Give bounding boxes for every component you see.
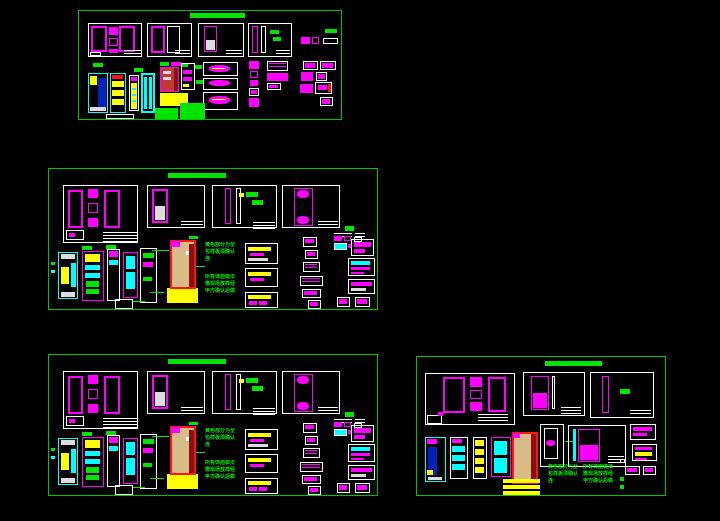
detail-part <box>51 456 55 459</box>
cabinet-part <box>85 265 100 270</box>
door-panel <box>580 445 598 460</box>
column-part <box>513 433 520 438</box>
detail-part <box>248 258 268 261</box>
detail-part <box>354 249 365 253</box>
detail-part <box>69 419 75 423</box>
detail-part <box>438 412 443 416</box>
detail-part <box>248 272 271 276</box>
green-label <box>246 192 258 197</box>
cabinet-part <box>143 277 152 281</box>
cabinet-part <box>143 262 153 267</box>
detail-part <box>304 291 317 295</box>
door-hardware <box>297 376 309 384</box>
detail-part <box>328 84 331 92</box>
detail-mark <box>334 243 347 250</box>
detail-part <box>351 468 372 472</box>
title-block <box>124 50 141 56</box>
cabinet-part <box>163 71 171 74</box>
detail-mark <box>300 84 313 93</box>
cad-canvas: 黄色部分为全 包样板须确认 连所有饰面做法 需现场放样经 甲方确认后做黄色部分为… <box>0 0 720 521</box>
detail-part <box>307 252 315 256</box>
detail-part <box>259 487 267 491</box>
detail-mark <box>115 299 133 309</box>
cabinet-part <box>174 68 178 91</box>
green-label <box>82 246 92 250</box>
door-elevation <box>104 190 120 228</box>
cabinet-part <box>85 451 100 456</box>
title-block <box>253 408 275 415</box>
green-label <box>252 200 263 205</box>
door-section-strip <box>602 376 609 413</box>
leader-line <box>196 80 203 84</box>
cabinet-part <box>90 76 97 85</box>
cabinet-part <box>109 437 118 443</box>
green-note: 黄色部分为全 包样板须确认 连 <box>548 464 582 494</box>
cabinet-part <box>61 254 75 259</box>
cabinet-part <box>126 272 135 289</box>
cabinet-part <box>86 467 99 473</box>
cabinet-part <box>126 256 135 269</box>
column-base <box>167 288 198 303</box>
cabinet-part <box>144 77 147 109</box>
detail-part <box>305 425 314 429</box>
detail-part <box>305 264 317 270</box>
cabinet-part <box>143 439 154 444</box>
cabinet-part <box>71 263 76 287</box>
green-label <box>252 386 263 391</box>
green-note: 所有饰面做法 需现场放样经 甲方确认后做 <box>205 460 241 486</box>
detail-part <box>248 444 268 447</box>
door-panel <box>533 393 547 408</box>
door-hardware <box>297 190 309 198</box>
green-note: 所有饰面做法 需现场放样经 甲方确认后做 <box>205 274 241 300</box>
detail-part <box>305 239 314 243</box>
cabinet-part <box>428 477 442 480</box>
door-frame-part <box>88 203 98 213</box>
green-label <box>160 62 169 66</box>
detail-part <box>248 247 271 251</box>
leader-line <box>133 301 145 302</box>
green-label <box>620 389 630 394</box>
column-base <box>503 479 540 483</box>
green-label <box>82 432 92 436</box>
detail-part <box>357 485 367 490</box>
door-section-strip <box>552 376 555 409</box>
cabinet-part <box>126 458 135 475</box>
detail-part <box>318 74 325 79</box>
green-note: 黄色部分为全 包样板须确认 连 <box>205 428 241 456</box>
detail-part <box>318 85 327 90</box>
green-label <box>345 226 354 231</box>
detail-part <box>183 84 189 87</box>
detail-part <box>248 295 271 299</box>
detail-part <box>305 63 315 68</box>
cabinet-part <box>452 439 462 443</box>
leader-line <box>150 292 164 293</box>
detail-part <box>351 282 372 286</box>
detail-part <box>51 270 55 273</box>
door-elevation <box>68 376 83 414</box>
cabinet-part <box>112 99 124 105</box>
detail-mark <box>267 73 288 81</box>
solid-fill-block <box>155 108 178 119</box>
green-label <box>93 63 103 67</box>
cabinet-part <box>475 440 484 446</box>
detail-part <box>339 299 347 304</box>
cabinet-part <box>61 478 75 483</box>
door-panel <box>155 206 165 220</box>
cabinet-part <box>427 439 437 444</box>
cabinet-part <box>132 94 136 96</box>
door-frame-part <box>88 375 98 384</box>
detail-part <box>171 62 181 66</box>
green-label <box>345 412 354 417</box>
detail-part <box>354 435 365 439</box>
green-note: 所有饰面做法 需现场放样经 甲方确认后做 <box>583 464 621 490</box>
door-section-strip <box>225 188 231 224</box>
door-section-strip <box>225 374 231 410</box>
detail-part <box>310 302 318 306</box>
column-base <box>503 491 540 495</box>
detail-part <box>183 70 192 74</box>
detail-mark <box>249 98 259 107</box>
cabinet-part <box>61 440 75 445</box>
title-block <box>561 407 581 414</box>
green-note: 黄色部分为全 包样板须确认 连 <box>205 242 241 270</box>
door-elevation <box>167 26 180 53</box>
door-elevation <box>68 190 83 228</box>
detail-part <box>249 301 257 305</box>
detail-part <box>248 433 271 437</box>
detail-part <box>339 485 347 490</box>
cabinet-part <box>112 81 124 87</box>
title-block <box>276 50 290 56</box>
door-panel <box>206 40 215 50</box>
leader-line <box>152 436 169 437</box>
detail-part <box>250 439 264 442</box>
detail-part <box>633 433 647 436</box>
cabinet-part <box>475 458 484 464</box>
solid-fill-block <box>180 103 205 119</box>
cabinet-part <box>427 470 433 475</box>
title-block <box>226 50 242 56</box>
door-elevation <box>104 376 120 414</box>
detail-part <box>249 487 257 491</box>
detail-mark <box>312 37 319 44</box>
cabinet-part <box>131 77 137 81</box>
green-label <box>134 68 143 72</box>
detail-mark <box>344 236 351 241</box>
column-part <box>171 241 180 247</box>
detail-part <box>351 458 364 460</box>
detail-mark <box>250 71 258 78</box>
handle-section <box>209 96 230 104</box>
column-part <box>189 244 194 287</box>
cabinet-part <box>143 448 153 453</box>
green-label <box>270 30 279 34</box>
door-elevation <box>151 26 165 53</box>
green-label <box>182 64 188 67</box>
title-block <box>630 410 651 416</box>
detail-part <box>239 379 244 383</box>
column-base <box>503 485 540 489</box>
door-elevation <box>119 26 135 52</box>
cabinet-part <box>61 292 75 297</box>
cabinet-part <box>85 254 100 262</box>
cabinet-part <box>85 273 100 278</box>
detail-part <box>183 77 192 81</box>
green-label <box>51 448 55 451</box>
detail-part <box>250 253 264 256</box>
green-label <box>325 29 337 33</box>
cabinet-part <box>163 77 171 80</box>
cabinet-part <box>85 459 100 464</box>
title-block <box>103 232 137 242</box>
detail-mark <box>334 422 342 427</box>
cabinet-part <box>452 446 465 452</box>
door-hardware <box>297 216 309 224</box>
door-hardware <box>546 440 555 446</box>
detail-part <box>302 278 320 284</box>
title-block <box>103 418 137 428</box>
detail-part <box>351 288 366 291</box>
door-section-strip <box>261 26 266 53</box>
detail-part <box>269 85 278 88</box>
cabinet-part <box>494 441 507 455</box>
door-hardware <box>297 402 309 410</box>
detail-part <box>307 438 315 442</box>
cabinet-part <box>132 100 136 102</box>
detail-part <box>351 272 364 274</box>
detail-part <box>322 63 333 68</box>
cabinet-part <box>61 267 69 284</box>
title-block <box>478 414 508 423</box>
detail-part <box>354 428 371 433</box>
cabinet-part <box>143 463 152 467</box>
cabinet-part <box>126 442 135 455</box>
leader-line <box>196 452 205 453</box>
detail-mark <box>301 37 310 44</box>
detail-part <box>351 447 370 451</box>
detail-mark <box>334 236 342 241</box>
cabinet-part <box>494 458 507 473</box>
green-label <box>273 37 281 41</box>
detail-part <box>212 68 226 69</box>
cabinet-part <box>86 289 99 294</box>
detail-part <box>248 481 271 485</box>
title-block <box>318 407 338 414</box>
detail-part <box>635 452 652 456</box>
leader-line <box>152 250 169 251</box>
cabinet-part <box>112 90 124 96</box>
title-block <box>318 221 338 228</box>
cabinet-part <box>143 253 154 258</box>
handle-section <box>209 80 230 86</box>
column-part <box>531 434 536 482</box>
leader-line <box>133 487 145 488</box>
detail-part <box>248 458 271 462</box>
detail-part <box>304 477 317 481</box>
door-panel <box>155 392 165 406</box>
detail-part <box>322 99 330 104</box>
door-elevation <box>488 377 506 412</box>
detail-mark <box>427 415 442 424</box>
title-block <box>175 50 190 56</box>
detail-part <box>305 450 317 456</box>
detail-part <box>69 233 75 237</box>
detail-part <box>357 299 367 304</box>
detail-part <box>351 261 370 265</box>
cabinet-part <box>131 83 137 109</box>
cabinet-part <box>452 455 465 461</box>
cabinet-part <box>86 475 99 480</box>
door-frame-part <box>470 402 482 411</box>
door-frame-part <box>470 390 482 399</box>
detail-part <box>645 468 653 472</box>
detail-part <box>351 474 366 477</box>
cabinet-part <box>109 446 118 451</box>
cabinet-part <box>475 467 484 473</box>
detail-part <box>310 488 318 492</box>
cabinet-part <box>112 75 123 79</box>
green-label <box>51 262 55 265</box>
title-block <box>181 221 203 228</box>
door-frame-part <box>470 377 482 387</box>
detail-mark <box>334 429 347 436</box>
sheet-title-bar <box>190 13 245 18</box>
door-frame-part <box>88 189 98 198</box>
door-elevation <box>91 26 107 52</box>
title-block <box>181 407 203 414</box>
sheet-title-bar <box>545 361 602 366</box>
column-base <box>167 474 198 489</box>
detail-mark <box>249 61 259 69</box>
green-label <box>189 236 198 239</box>
leader-line <box>150 478 164 479</box>
detail-mark <box>115 485 133 495</box>
detail-part <box>239 193 244 197</box>
cabinet-part <box>98 78 106 108</box>
leader-line <box>194 65 202 69</box>
column-part <box>171 427 180 433</box>
door-frame-part <box>88 404 98 413</box>
door-frame-part <box>88 389 98 399</box>
detail-mark <box>90 52 101 56</box>
detail-mark <box>250 80 258 86</box>
detail-part <box>351 267 370 270</box>
detail-part <box>633 427 652 431</box>
detail-part <box>302 464 320 470</box>
detail-part <box>354 242 371 247</box>
detail-mark <box>301 72 313 81</box>
detail-part <box>250 464 264 467</box>
door-frame-part <box>109 38 118 46</box>
detail-part <box>627 468 637 472</box>
door-frame-part <box>109 27 118 35</box>
sheet-title-bar <box>168 359 226 364</box>
title-block <box>253 222 275 229</box>
cabinet-part <box>452 464 465 470</box>
detail-mark <box>323 38 338 44</box>
door-frame-part <box>88 218 98 227</box>
door-section-strip <box>252 26 258 53</box>
detail-part <box>351 453 370 456</box>
green-label <box>189 422 198 425</box>
detail-part <box>212 99 226 100</box>
cabinet-part <box>61 453 69 470</box>
detail-part <box>250 278 264 281</box>
sheet-title-bar <box>168 173 226 178</box>
cabinet-part <box>132 88 136 90</box>
detail-part <box>259 301 267 305</box>
detail-part <box>635 447 652 450</box>
cabinet-part <box>90 107 106 111</box>
green-label <box>246 378 258 383</box>
cabinet-part <box>86 281 99 287</box>
door-section-strip <box>573 429 576 461</box>
detail-mark <box>106 114 134 119</box>
detail-part <box>635 458 647 460</box>
cabinet-part <box>109 251 118 257</box>
cabinet-part <box>475 449 484 455</box>
detail-mark <box>620 459 625 463</box>
leader-line <box>196 266 205 267</box>
cabinet-part <box>71 449 76 473</box>
cabinet-part <box>85 440 100 448</box>
door-frame-part <box>109 49 118 53</box>
door-elevation <box>443 377 465 413</box>
detail-part <box>251 90 257 94</box>
detail-mark <box>344 422 351 427</box>
detail-part <box>269 63 286 69</box>
column-part <box>189 430 194 473</box>
cabinet-part <box>109 260 118 265</box>
cabinet-part <box>149 77 152 109</box>
